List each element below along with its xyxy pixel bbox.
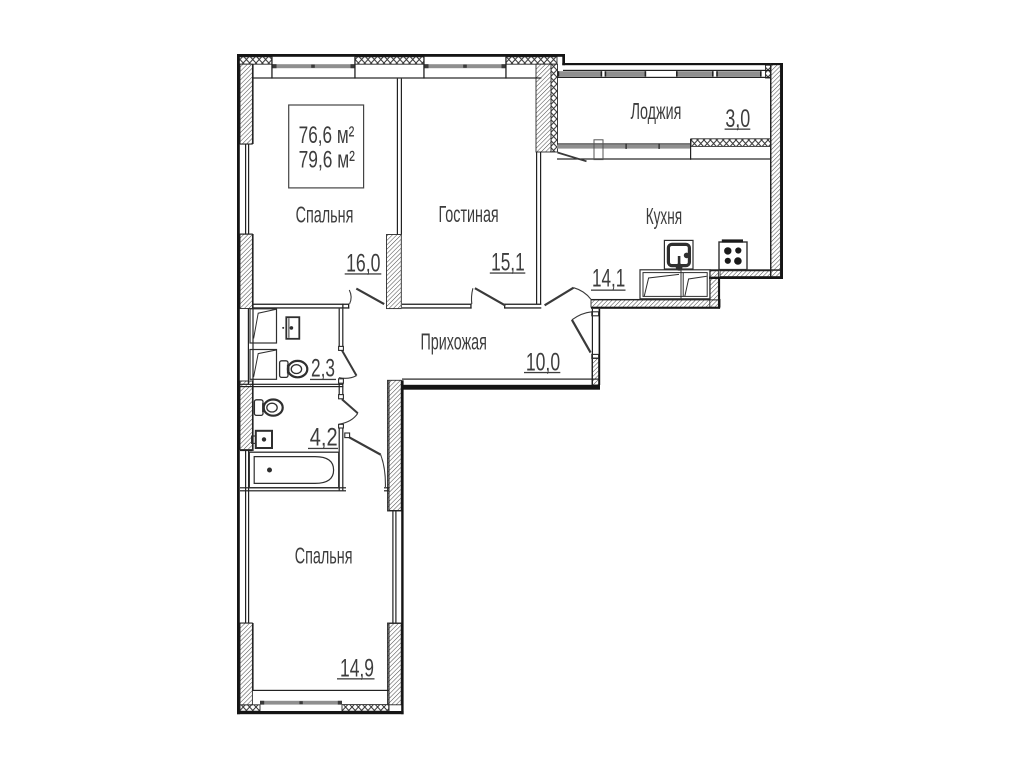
svg-text:4,2: 4,2 (310, 424, 338, 452)
svg-text:2,3: 2,3 (311, 355, 335, 383)
svg-text:76,6 м²: 76,6 м² (299, 122, 355, 149)
svg-text:79,6 м²: 79,6 м² (299, 147, 355, 174)
svg-text:Кухня: Кухня (646, 203, 682, 229)
svg-text:Спальня: Спальня (296, 201, 354, 227)
svg-text:Гостиная: Гостиная (439, 201, 499, 227)
svg-text:16,0: 16,0 (346, 249, 380, 277)
svg-text:Прихожая: Прихожая (421, 328, 487, 354)
svg-text:Лоджия: Лоджия (631, 98, 682, 124)
svg-text:Спальня: Спальня (295, 542, 353, 568)
svg-text:14,1: 14,1 (592, 265, 625, 293)
